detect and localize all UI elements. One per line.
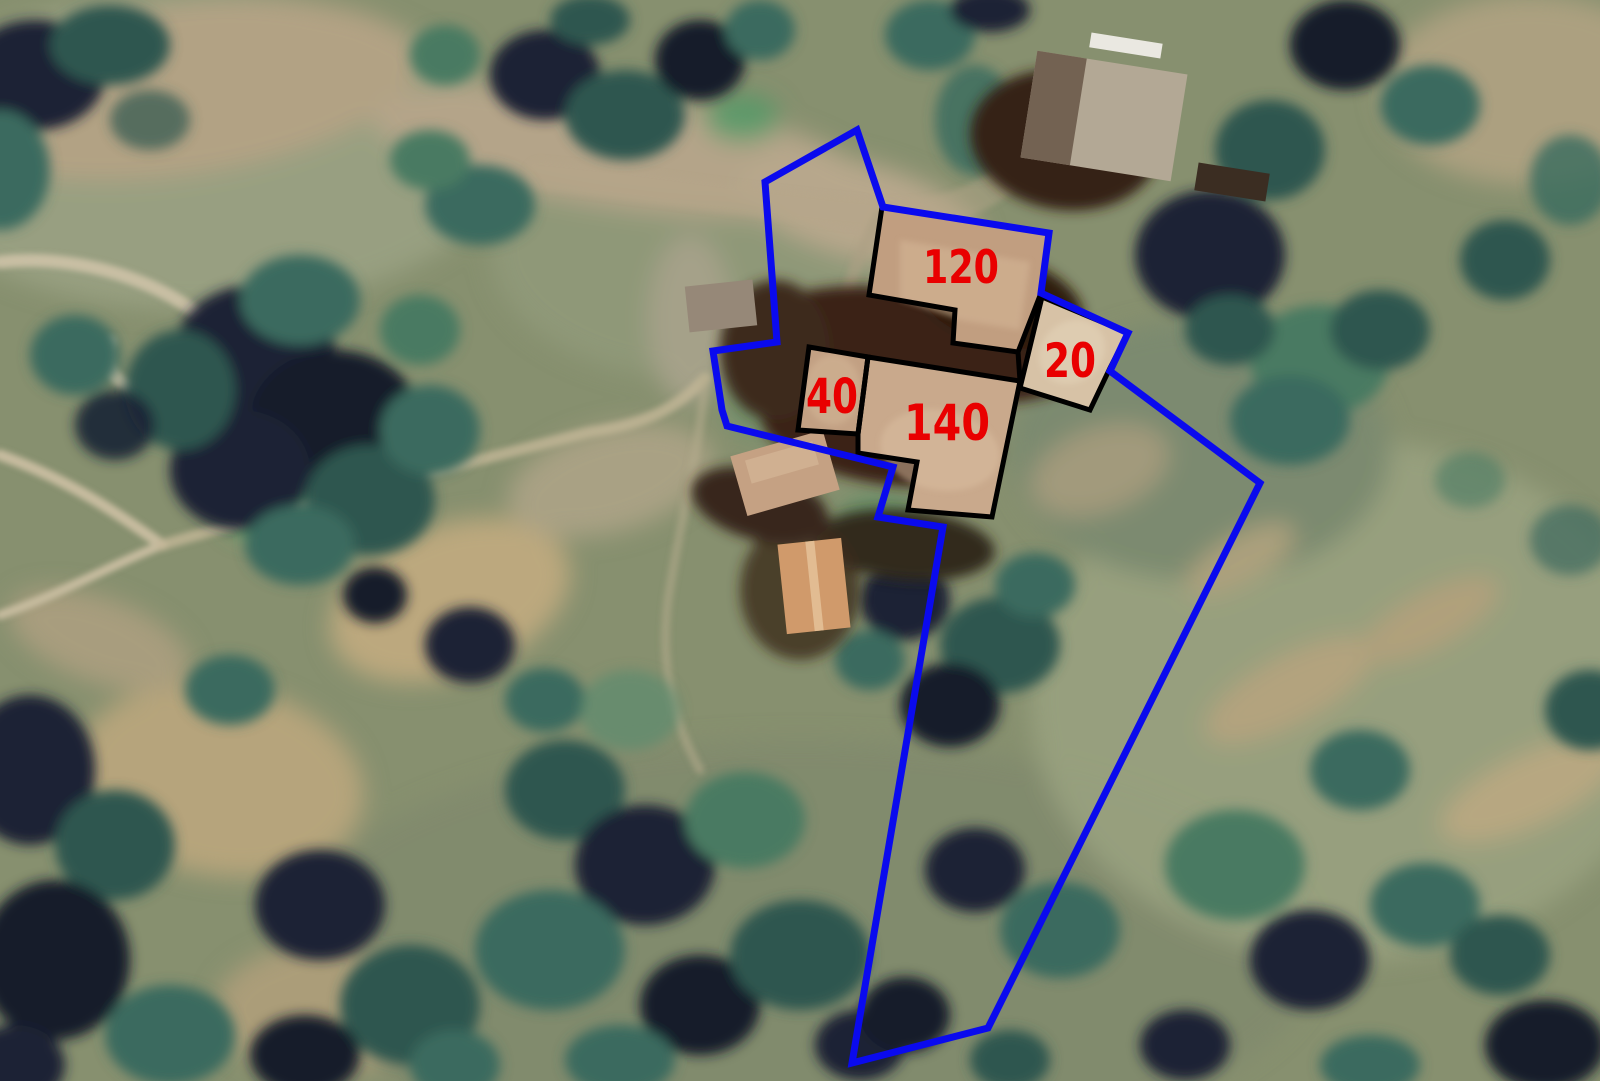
area-label-120: 120 [923, 240, 999, 294]
area-label-40: 40 [806, 369, 858, 425]
satellite-image: 1204014020 [0, 0, 1600, 1081]
area-label-20: 20 [1044, 334, 1096, 389]
area-label-140: 140 [904, 394, 990, 452]
small-west-roof [685, 279, 757, 332]
aerial-scene: 1204014020 [0, 0, 1600, 1081]
wall-connector [1018, 352, 1020, 381]
